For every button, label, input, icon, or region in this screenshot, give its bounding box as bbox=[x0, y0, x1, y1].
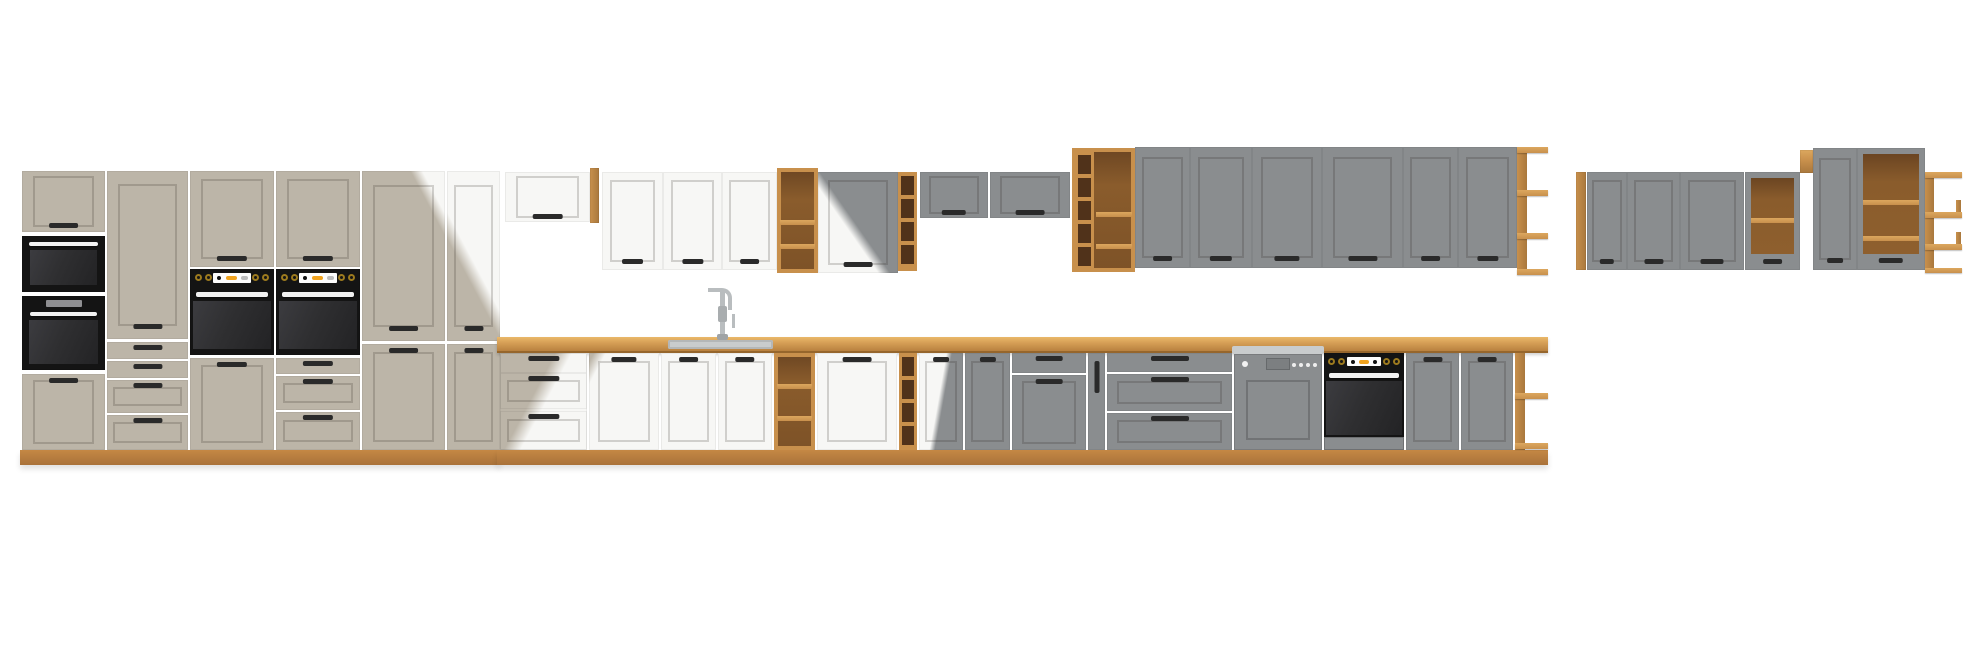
shelf-board bbox=[1925, 212, 1962, 218]
shelf-support bbox=[1956, 200, 1961, 212]
shelf-side-panel bbox=[1925, 172, 1934, 273]
open-wall-unit bbox=[1745, 172, 1800, 270]
oak-top-filler bbox=[1800, 150, 1813, 173]
wall-door bbox=[1587, 172, 1627, 270]
shelf-board bbox=[1925, 268, 1962, 273]
tall-open-wall-unit bbox=[1857, 148, 1925, 270]
shelf-support bbox=[1956, 232, 1961, 244]
wall-door bbox=[1627, 172, 1680, 270]
shelf-board bbox=[1925, 172, 1962, 178]
oak-end-strip bbox=[1576, 172, 1586, 270]
oak-interior bbox=[1863, 154, 1919, 254]
kitchen-set-render bbox=[0, 0, 1980, 656]
oak-interior bbox=[1751, 178, 1794, 254]
shelf-board bbox=[1863, 236, 1919, 241]
shelf-board bbox=[1751, 218, 1794, 223]
wall-cabinet-group-right bbox=[0, 0, 1980, 656]
wall-door bbox=[1680, 172, 1744, 270]
tall-wall-door bbox=[1813, 148, 1857, 270]
shelf-board bbox=[1863, 200, 1919, 205]
corner-open-shelf bbox=[1925, 172, 1962, 273]
shelf-board bbox=[1925, 244, 1962, 250]
